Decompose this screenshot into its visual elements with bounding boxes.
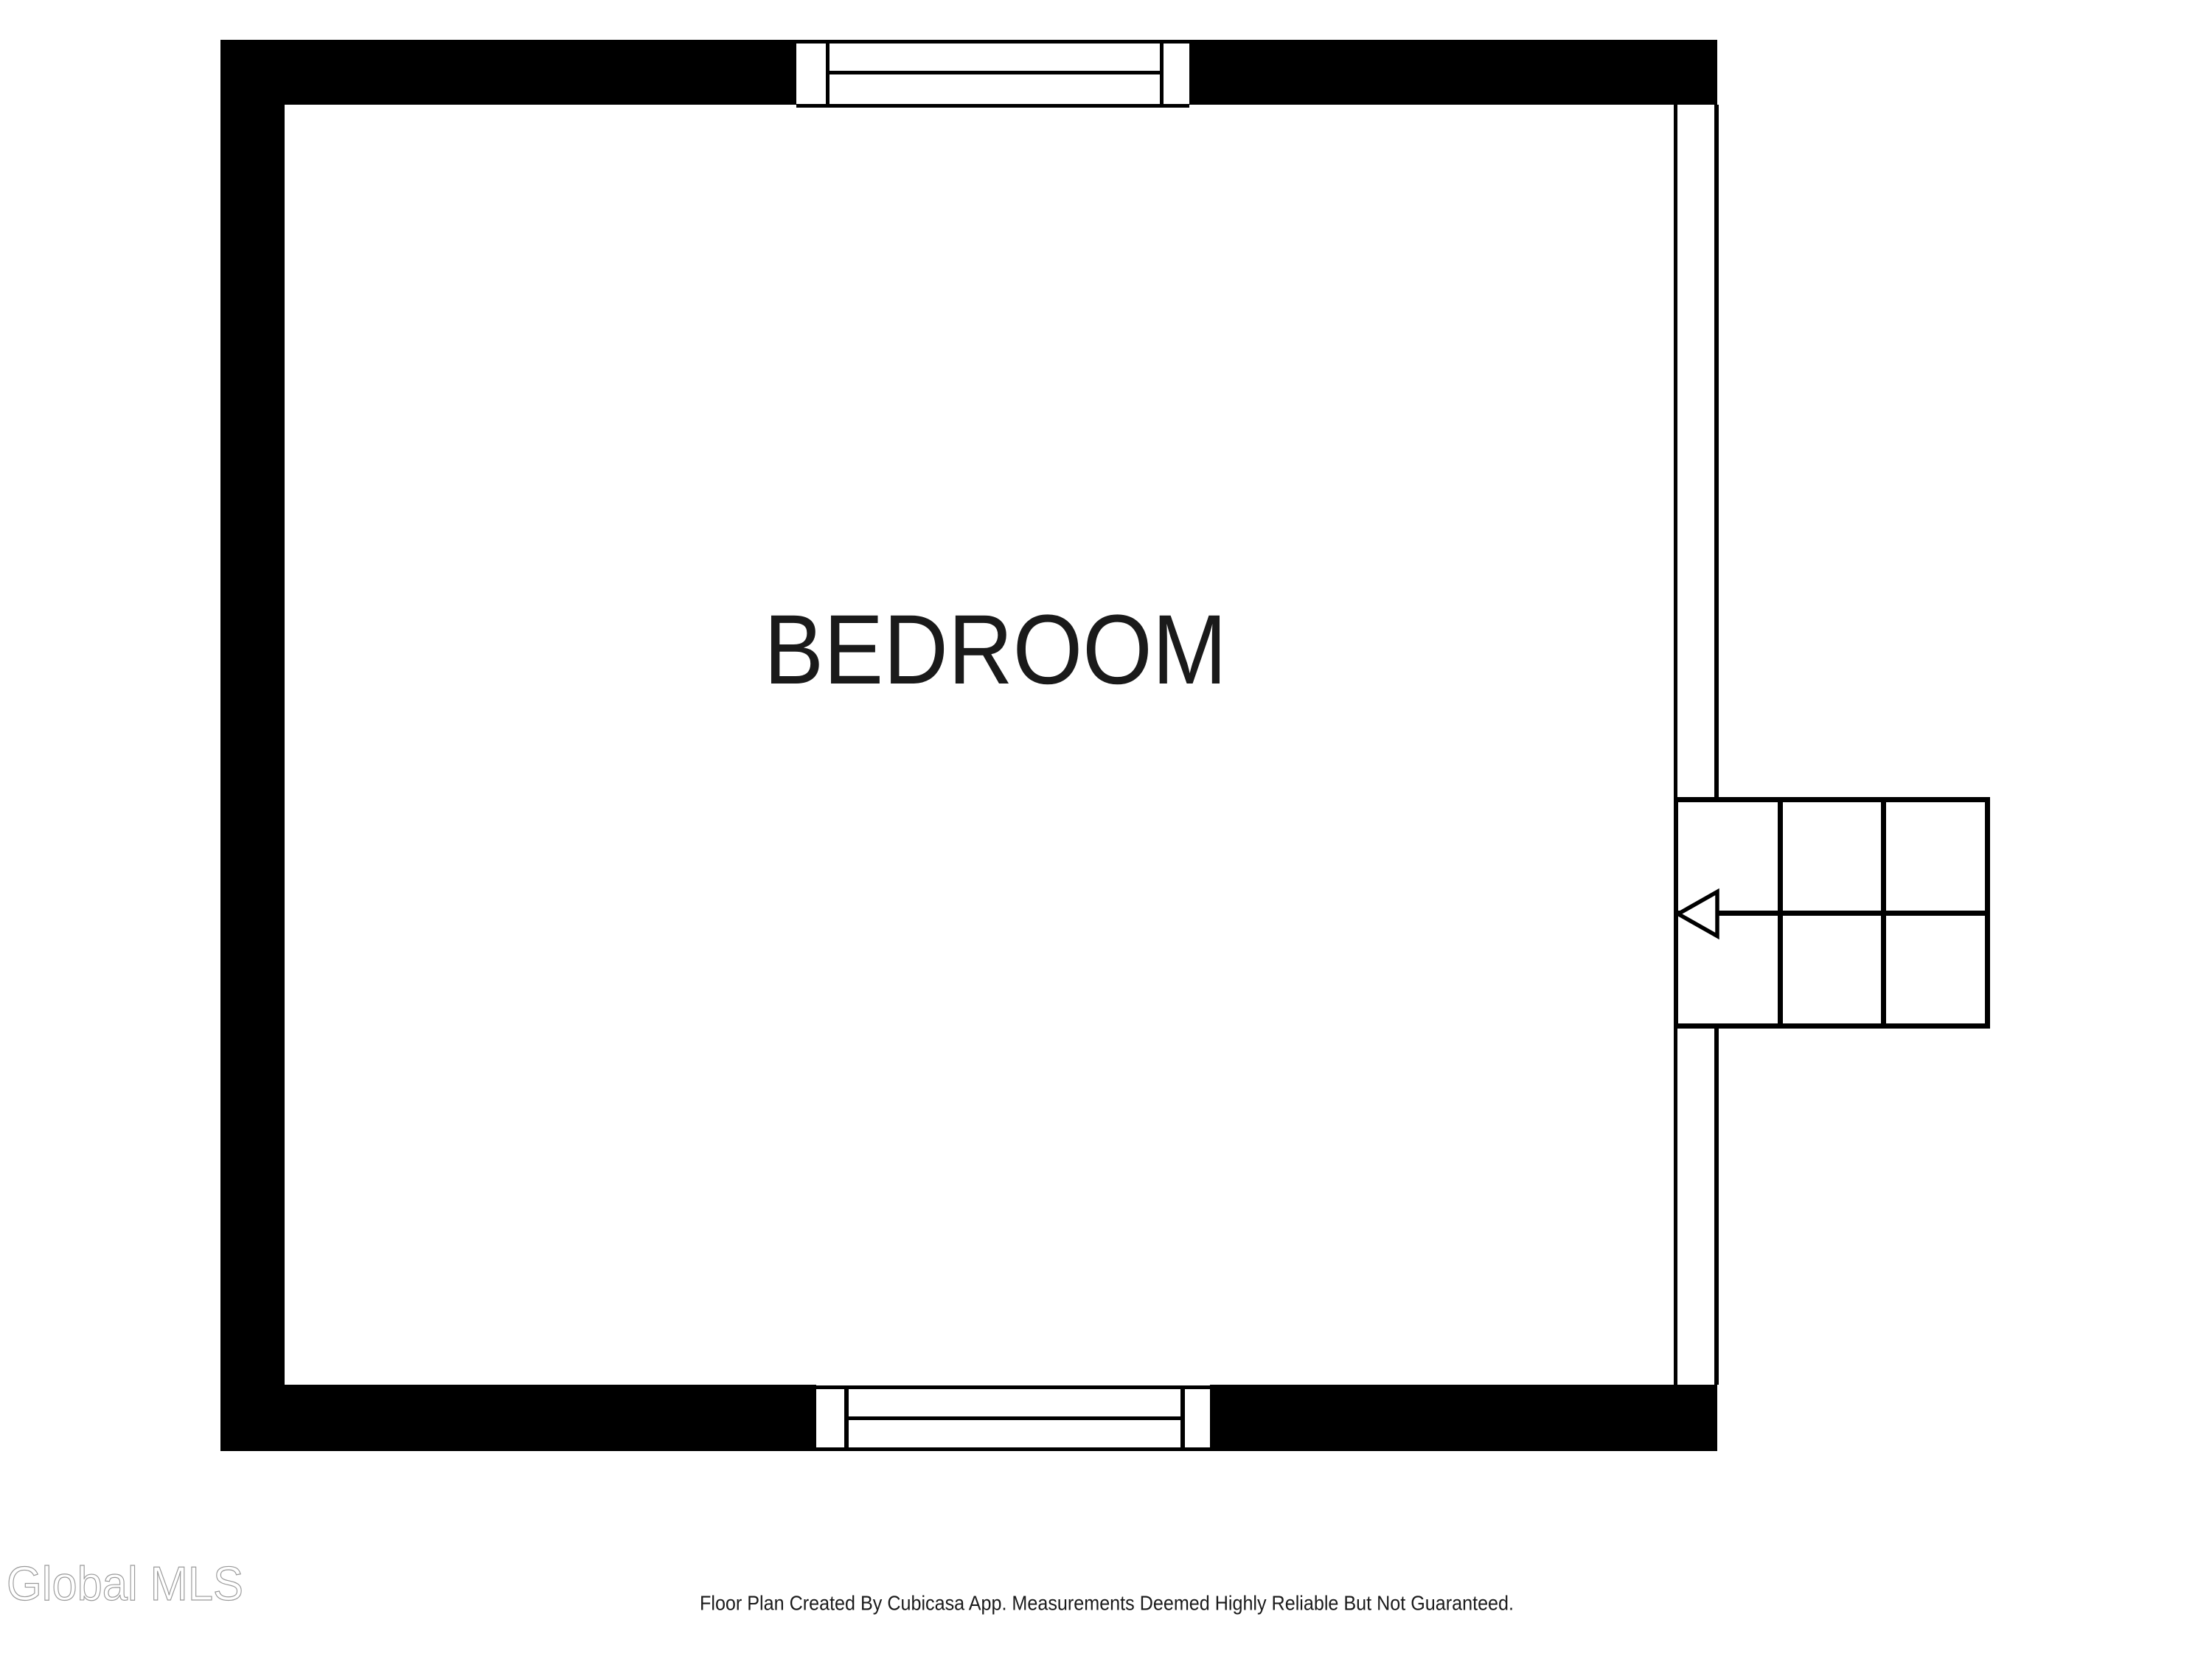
svg-text:Global MLS: Global MLS (7, 1557, 243, 1610)
svg-text:Floor Plan Created By Cubicasa: Floor Plan Created By Cubicasa App. Meas… (700, 1592, 1514, 1615)
svg-text:BEDROOM: BEDROOM (764, 595, 1227, 705)
